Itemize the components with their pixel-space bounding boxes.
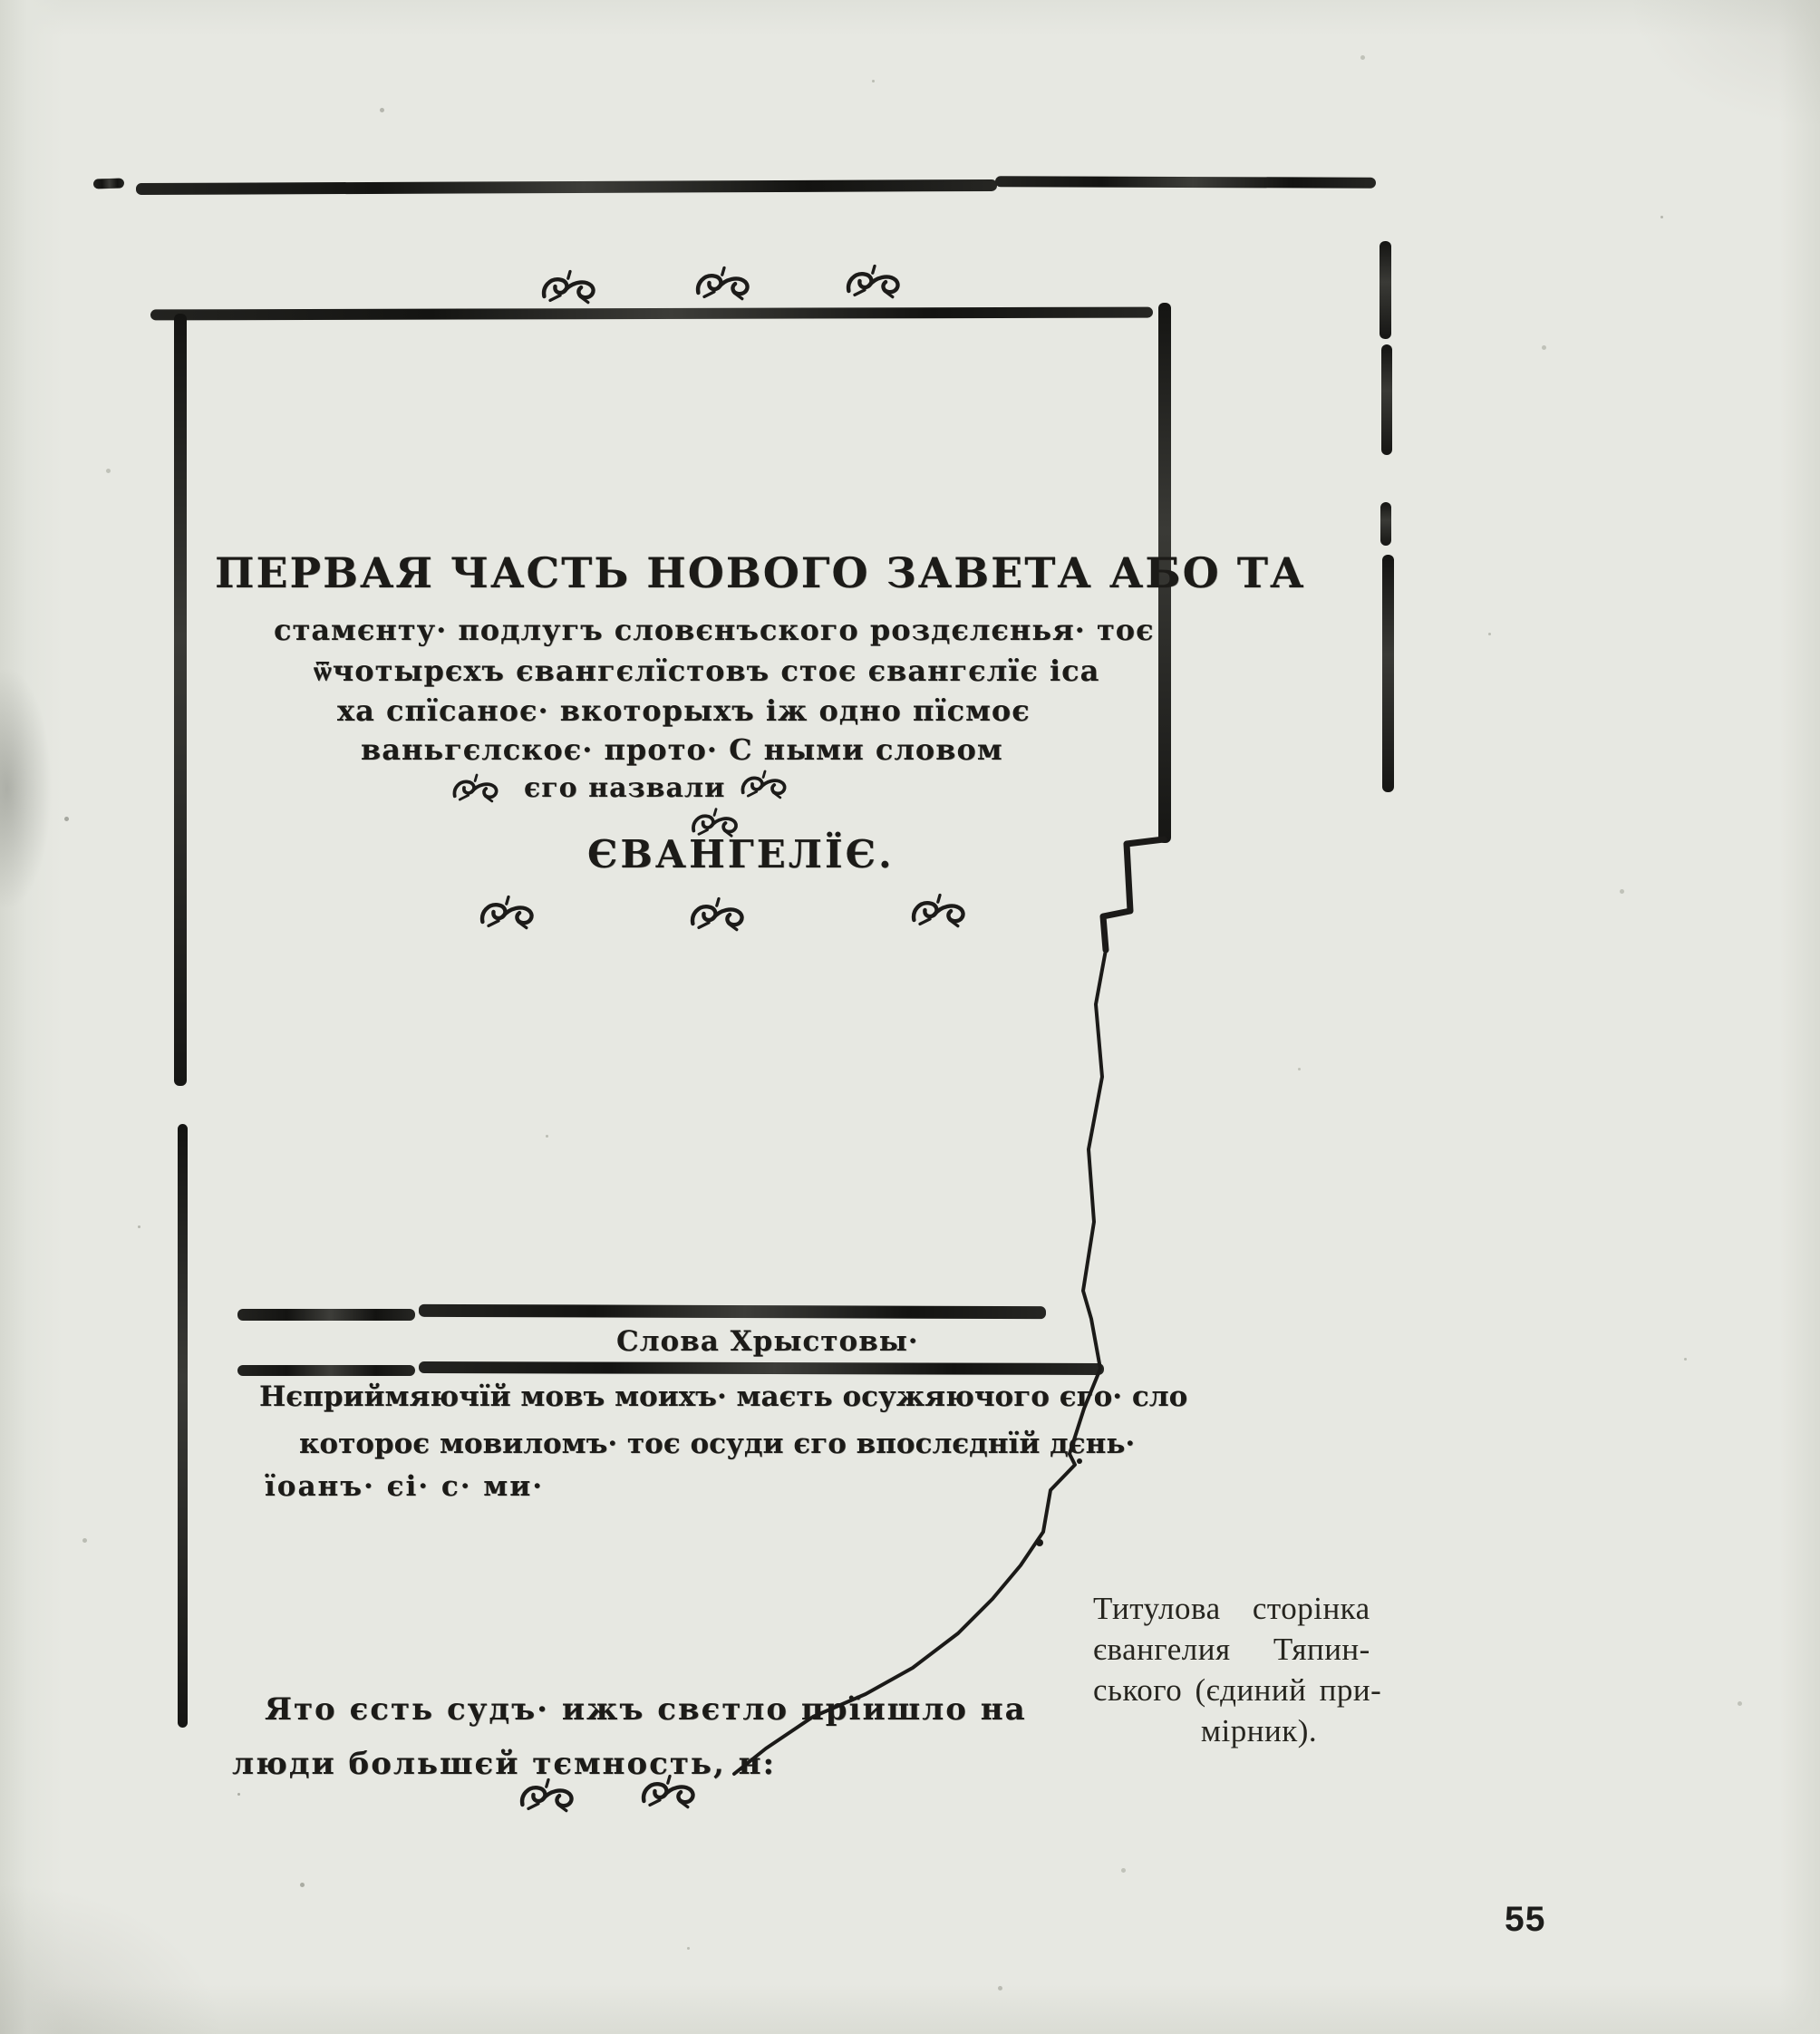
- fleuron-icon: [518, 1775, 578, 1815]
- frame-left-border-upper: [174, 314, 187, 1086]
- fleuron-icon: [640, 1771, 700, 1811]
- frame-inner-top-rule: [150, 307, 1153, 321]
- fleuron-icon: [910, 890, 970, 930]
- frame-outer-top-rule-right: [995, 176, 1376, 188]
- fleuron-icon: [689, 894, 749, 934]
- frame-outer-right-border-seg1: [1380, 241, 1391, 339]
- fleuron-icon: [451, 770, 502, 805]
- fleuron-icon: [845, 261, 905, 301]
- facsimile-quote2-line-1: Ято єсть судъ· ижъ свєтло прїишло на: [265, 1691, 1027, 1728]
- frame-outer-right-border-seg3: [1380, 502, 1391, 546]
- figure-caption: Титулова сторінка євангелия Тяпин- ськог…: [1093, 1588, 1425, 1751]
- middle-rule-upper-right: [419, 1304, 1046, 1319]
- facsimile-quote1-line-2: котороє мовиломъ· тоє осуди єго впослєдн…: [299, 1428, 1135, 1460]
- fleuron-icon: [694, 263, 754, 303]
- facsimile-section-heading: Слова Хрыстовы·: [616, 1325, 919, 1358]
- facsimile-evangelie-title: ЄВАНГЕЛЇЄ.: [587, 832, 895, 877]
- facsimile-title-line-2: стамєнту· подлугъ словєнъского роздєлєнь…: [274, 613, 1155, 647]
- fleuron-icon: [479, 892, 538, 932]
- paper-speckles: [0, 0, 3, 3]
- page-number: 55: [1505, 1900, 1545, 1940]
- facsimile-quote1-line-1: Нєприймяючїй мовъ моихъ· маєть осужяючог…: [259, 1380, 1187, 1413]
- middle-rule-lower-left: [237, 1365, 415, 1376]
- caption-line: євангелия Тяпин-: [1093, 1629, 1425, 1670]
- facsimile-title-line-3: ѿчотырєхъ євангєлїстовъ стоє євангєлїє і…: [314, 654, 1099, 688]
- torn-edge: [0, 0, 1820, 2034]
- facsimile-title-line-5: ваньгєлскоє· прото· С ными словом: [361, 732, 1003, 767]
- scanned-book-page: ПЕРВАЯ ЧАСТЬ НОВОГО ЗАВЕТА АБО ТА стамєн…: [0, 0, 1820, 2034]
- facsimile-title-line-1: ПЕРВАЯ ЧАСТЬ НОВОГО ЗАВЕТА АБО ТА: [215, 548, 1305, 597]
- caption-line: Титулова сторінка: [1093, 1588, 1425, 1629]
- fleuron-icon: [540, 266, 600, 306]
- caption-line: ського (єдиний при-: [1093, 1670, 1425, 1710]
- torn-edge-step: [1103, 839, 1164, 950]
- fleuron-icon: [740, 767, 790, 801]
- facsimile-title-line-6: єго назвали: [524, 772, 725, 804]
- frame-outer-right-border-seg4: [1382, 555, 1394, 792]
- middle-rule-lower-right: [419, 1361, 1104, 1375]
- caption-line: мірник).: [1093, 1710, 1425, 1751]
- frame-top-left-dash: [93, 178, 124, 189]
- middle-rule-upper-left: [237, 1309, 415, 1321]
- facsimile-title-line-4: ха спїсаноє· вкоторыхъ іж одно пїсмоє: [337, 693, 1031, 728]
- facsimile-quote1-line-3: їоанъ· єі· с· ми·: [265, 1470, 544, 1503]
- frame-left-border-lower: [178, 1124, 188, 1728]
- frame-outer-right-border-seg2: [1381, 344, 1392, 455]
- torn-edge-speck: [1036, 1539, 1043, 1546]
- frame-outer-top-rule: [136, 179, 997, 195]
